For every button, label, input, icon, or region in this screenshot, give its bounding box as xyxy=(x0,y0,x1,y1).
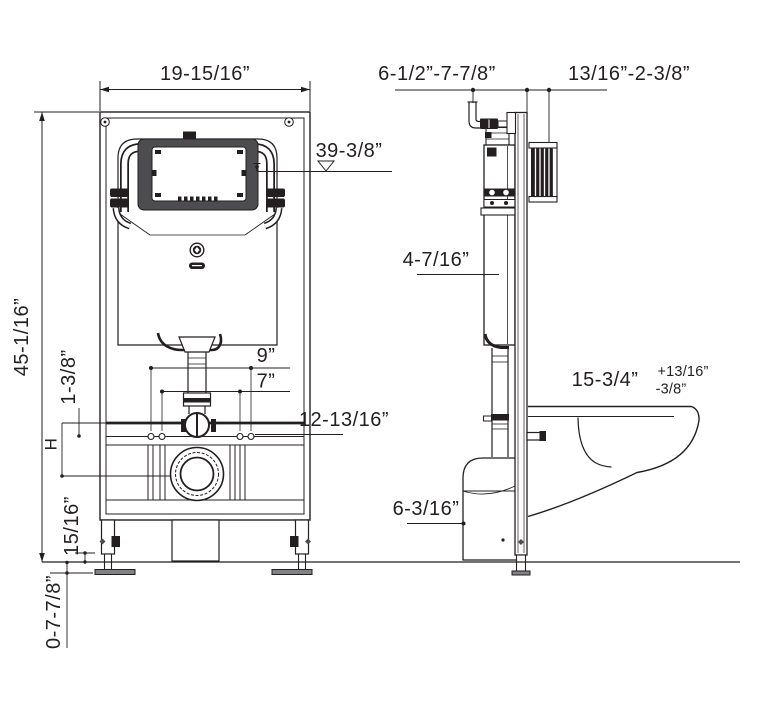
outer-bolt-spacing-label: 9” xyxy=(257,345,276,367)
outlet-box xyxy=(172,520,219,561)
variable-height-label: H xyxy=(42,438,61,451)
clamp-offset-label: 1-3/8” xyxy=(58,349,80,404)
bolt-hole xyxy=(237,434,243,440)
installation-diagram: 19-15/16” 45-1/16” xyxy=(0,0,777,703)
mounting-bracket xyxy=(481,189,518,216)
drain-elbow xyxy=(463,458,520,560)
front-height-label: 45-1/16” xyxy=(11,298,33,377)
bolt-hole xyxy=(248,434,254,440)
flush-actuator-plate xyxy=(529,143,557,203)
bowl-projection-annotation: 15-3/4” +13/16” -3/8” xyxy=(572,364,709,398)
inner-bolt-spacing-label: 7” xyxy=(257,371,276,393)
foot-plate-left xyxy=(95,570,135,575)
water-supply-elbow xyxy=(468,102,516,134)
front-width-dimension: 19-15/16” xyxy=(100,63,310,111)
bolt-hole xyxy=(148,434,154,440)
side-view: 6-1/2”-7-7/8” 13/16”-2-3/8” xyxy=(378,63,708,575)
bowl-tol-plus-label: +13/16” xyxy=(658,364,709,380)
bolt-hole xyxy=(159,434,165,440)
front-height-dimension: 45-1/16” xyxy=(11,112,99,562)
rail-foot-plate xyxy=(512,571,530,575)
bowl-tol-minus-label: -3/8” xyxy=(656,382,687,398)
tank-depth-label: 4-7/16” xyxy=(403,249,470,271)
wall-thickness-label: 13/16”-2-3/8” xyxy=(568,63,690,85)
foot-gap-dimension: 15/16” xyxy=(61,496,95,564)
foot-gap-label: 15/16” xyxy=(61,496,83,556)
concealed-tank xyxy=(110,132,285,351)
foot-plate-right xyxy=(272,570,312,575)
foot-adjustment-label: 0-7-7/8” xyxy=(43,575,65,649)
side-flush-pipe xyxy=(484,348,510,457)
wall-rail xyxy=(512,113,530,576)
foot-adjustment-dimension: 0-7-7/8” xyxy=(43,561,93,649)
side-top-dimensions: 6-1/2”-7-7/8” 13/16”-2-3/8” xyxy=(378,63,690,142)
bowl-projection-label: 15-3/4” xyxy=(572,369,639,391)
drain-height-label: 6-3/16” xyxy=(393,498,460,520)
drain-height-annotation: 6-3/16” xyxy=(393,498,466,526)
front-view: 19-15/16” 45-1/16” xyxy=(11,63,392,649)
access-window xyxy=(138,132,258,211)
toilet-bowl-profile xyxy=(528,407,699,517)
supply-rough-in-label: 6-1/2”-7-7/8” xyxy=(378,63,496,85)
bowl-mounting-rod xyxy=(527,431,546,441)
side-tank xyxy=(481,128,518,348)
actuator-height-label: 39-3/8” xyxy=(316,140,383,162)
datum-triangle-icon xyxy=(318,161,334,171)
clamp-offset-dimension: 1-3/8” xyxy=(58,349,81,437)
window-top-tab xyxy=(183,132,196,140)
drain-outlet xyxy=(171,448,224,501)
rail-height-label: 12-13/16” xyxy=(299,409,389,431)
front-width-label: 19-15/16” xyxy=(160,63,250,85)
diagram-canvas: 19-15/16” 45-1/16” xyxy=(0,0,777,703)
